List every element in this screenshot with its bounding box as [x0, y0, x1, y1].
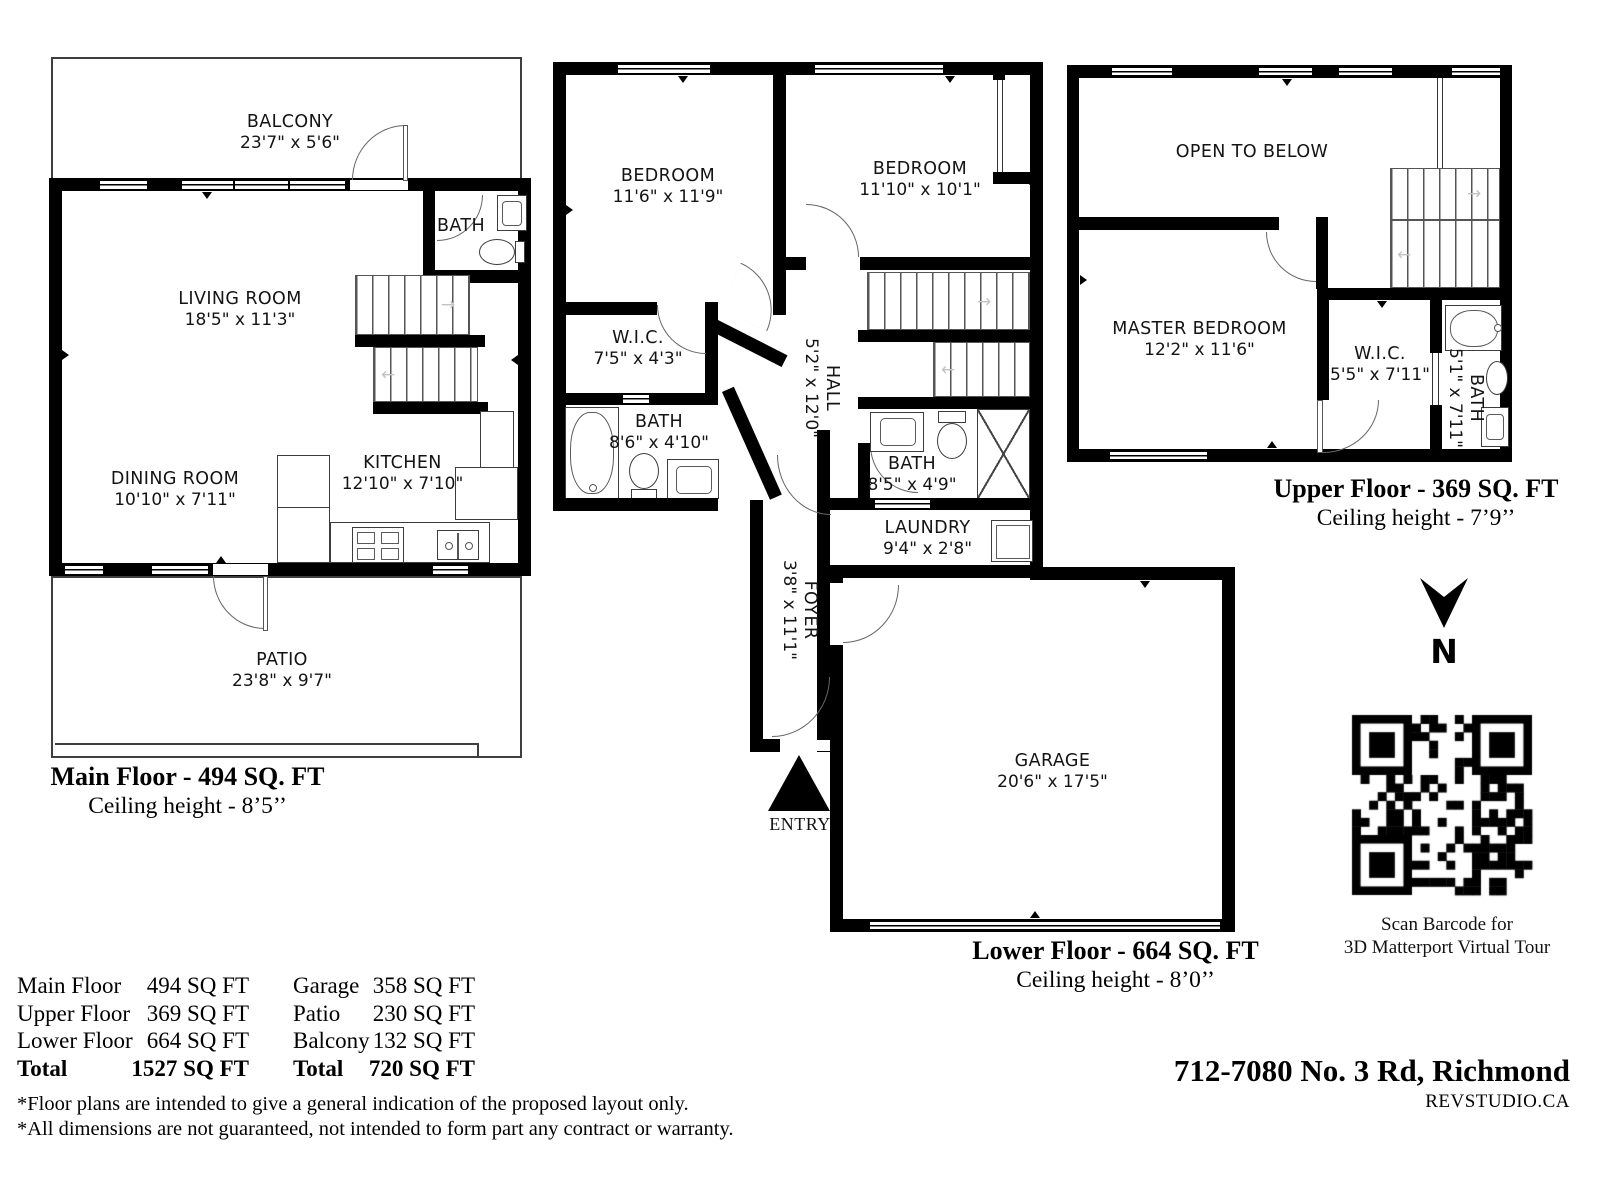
bathroom-sink: [497, 195, 527, 231]
wall: [49, 178, 62, 576]
room-label-kitchen: KITCHEN 12'10" x 7'10": [315, 452, 490, 496]
shower: [977, 409, 1030, 499]
address: 712-7080 No. 3 Rd, Richmond: [900, 1054, 1570, 1088]
window-mullion: [233, 179, 235, 191]
wall-tick: [678, 76, 688, 83]
door-opening: [350, 180, 408, 190]
stairs-arrow-icon: →: [441, 297, 455, 314]
patio-step-line: [477, 743, 479, 757]
caption-lower-floor: Lower Floor - 664 SQ. FT Ceiling height …: [958, 936, 1273, 995]
summary-row: Balcony132 SQ FT: [293, 1027, 475, 1055]
wall-tick: [1030, 911, 1040, 918]
room-label-laundry: LAUNDRY 9'4" x 2'8": [845, 517, 1010, 561]
room-label-master: MASTER BEDROOM 12'2" x 11'6": [1092, 318, 1307, 362]
floorplan-page: BATH → ←: [0, 0, 1600, 1200]
area-summary-right: Garage358 SQ FT Patio230 SQ FT Balcony13…: [293, 972, 475, 1082]
window: [100, 179, 147, 191]
room-label-wic: W.I.C. 5'5" x 7'11": [1325, 343, 1435, 387]
wall-tick: [1023, 175, 1030, 185]
wall: [1345, 288, 1512, 300]
disclaimer-line-1: *Floor plans are intended to give a gene…: [17, 1092, 777, 1117]
door-arc: [777, 455, 831, 515]
room-label-foyer: FOYER 3'8" x 11'1": [775, 550, 821, 670]
wall: [1079, 217, 1279, 230]
stairs-arrow-icon: ←: [941, 362, 955, 379]
window: [1110, 450, 1207, 461]
window: [815, 63, 943, 75]
brand: REVSTUDIO.CA: [900, 1088, 1570, 1116]
summary-row: Upper Floor369 SQ FT: [17, 1000, 249, 1028]
wall: [1500, 65, 1512, 462]
pocket-door: [623, 393, 649, 405]
garage-door: [870, 920, 1220, 931]
door-opening: [830, 583, 843, 645]
door-arc: [1323, 400, 1379, 453]
room-label-open-to-below: OPEN TO BELOW: [1142, 141, 1362, 163]
room-label-patio: PATIO 23'8" x 9'7": [192, 649, 372, 693]
room-label-bath2: BATH 8'5" x 4'9": [847, 453, 977, 497]
window: [152, 564, 208, 576]
window: [433, 564, 468, 576]
wall-tick: [62, 350, 69, 360]
bathroom-sink: [870, 412, 924, 452]
wall: [1222, 567, 1235, 932]
door-leaf: [403, 125, 408, 181]
door-arc: [1266, 232, 1316, 282]
summary-row: Patio230 SQ FT: [293, 1000, 475, 1028]
door-arc: [806, 204, 859, 257]
window: [1112, 66, 1172, 77]
door-arc: [843, 585, 899, 643]
wall: [830, 498, 1035, 510]
wall: [355, 335, 485, 347]
bathroom-sink: [667, 459, 719, 499]
room-label-hall: HALL 5'2" x 12'0": [797, 328, 843, 448]
wall: [750, 739, 780, 752]
wall-diagonal: [712, 320, 787, 367]
room-label-living: LIVING ROOM 18'5" x 11'3": [150, 288, 330, 332]
slide-door: [875, 498, 930, 510]
wall-tick: [511, 355, 518, 365]
entry-label: ENTRY: [760, 813, 840, 836]
window: [182, 179, 345, 191]
window: [1259, 66, 1312, 77]
summary-row: Garage358 SQ FT: [293, 972, 475, 1000]
caption-upper-floor: Upper Floor - 369 SQ. FT Ceiling height …: [1266, 474, 1566, 533]
wall: [773, 62, 786, 315]
wall: [373, 402, 488, 414]
entry-arrow-icon: [768, 755, 830, 811]
toilet: [1486, 361, 1508, 395]
wall-tick: [945, 76, 955, 83]
wall-tick: [1282, 79, 1292, 86]
wall: [993, 70, 1005, 80]
qr-code: [1347, 710, 1537, 900]
summary-row: Lower Floor664 SQ FT: [17, 1027, 249, 1055]
summary-row-total: Total1527 SQ FT: [17, 1055, 249, 1083]
summary-row-total: Total720 SQ FT: [293, 1055, 475, 1083]
wall-tick: [566, 205, 573, 215]
wall: [1030, 567, 1235, 580]
window: [1452, 66, 1500, 77]
wall-tick: [1267, 441, 1277, 448]
wall: [786, 257, 806, 270]
room-label-dining: DINING ROOM 10'10" x 7'11": [85, 468, 265, 512]
qr-caption: Scan Barcode for 3D Matterport Virtual T…: [1342, 914, 1552, 960]
north-arrow-icon: [1420, 578, 1468, 628]
wall: [1316, 217, 1328, 289]
room-label-bath1: BATH 8'6" x 4'10": [593, 411, 725, 455]
kitchen-sink: [437, 530, 479, 560]
toilet-tank: [515, 241, 525, 263]
stove: [352, 527, 404, 563]
disclaimer-line-2: *All dimensions are not guaranteed, not …: [17, 1117, 777, 1142]
stairs-arrow-icon: ←: [1397, 247, 1411, 264]
patio-step-line: [55, 743, 479, 745]
wall: [830, 565, 1035, 578]
window-mullion: [288, 179, 290, 191]
stairs-arrow-icon: ←: [381, 367, 395, 384]
wall: [553, 393, 623, 405]
room-label-bedroom1: BEDROOM 11'6" x 11'9": [573, 165, 763, 209]
room-label-bath: BATH: [425, 215, 497, 237]
window: [65, 564, 103, 576]
floor-plan-upper: → ← OPEN TO BELOW: [1067, 65, 1512, 465]
toilet-tank: [938, 411, 966, 423]
room-label-bedroom2: BEDROOM 11'10" x 10'1": [825, 158, 1015, 202]
wall: [1430, 405, 1442, 449]
north-label: N: [1418, 632, 1470, 671]
toilet: [629, 453, 659, 489]
wall: [750, 500, 763, 752]
room-label-garage: GARAGE 20'6" x 17'5": [960, 750, 1145, 794]
door-leaf: [1317, 400, 1323, 453]
caption-main-floor: Main Floor - 494 SQ. FT Ceiling height -…: [30, 762, 345, 821]
wall: [553, 302, 657, 315]
wall: [1067, 65, 1079, 462]
footer-address-block: 712-7080 No. 3 Rd, Richmond REVSTUDIO.CA: [900, 1054, 1570, 1116]
room-label-wic: W.I.C. 7'5" x 4'3": [563, 327, 713, 371]
floor-plan-main: BATH → ←: [45, 55, 537, 767]
area-summary-left: Main Floor494 SQ FT Upper Floor369 SQ FT…: [17, 972, 249, 1082]
summary-row: Main Floor494 SQ FT: [17, 972, 249, 1000]
stairs-arrow-icon: →: [977, 294, 991, 311]
stairs: [1390, 168, 1500, 220]
wall-diagonal: [722, 387, 782, 500]
wall-tick: [1140, 581, 1150, 588]
wall: [518, 178, 531, 576]
wall: [858, 330, 1030, 342]
window: [618, 63, 710, 75]
window: [1339, 66, 1392, 77]
wall-tick: [216, 556, 226, 563]
wall: [649, 393, 718, 405]
kitchen-counter: [277, 507, 330, 563]
toilet: [479, 239, 515, 265]
wall: [860, 257, 1030, 270]
room-label-balcony: BALCONY 23'7" x 5'6": [200, 111, 380, 155]
stairs: [867, 272, 1030, 330]
door-opening: [213, 564, 268, 575]
wall-tick: [1080, 275, 1087, 285]
wall-tick: [1377, 301, 1387, 308]
wall: [553, 498, 718, 511]
room-label-bath: BATH 5'1" x 7'11": [1447, 343, 1487, 453]
door-opening: [780, 740, 830, 751]
stairs-arrow-icon: →: [1467, 186, 1481, 203]
wall-tick: [202, 192, 212, 199]
wall: [858, 397, 1030, 409]
stair-railing: [1437, 78, 1443, 168]
door-leaf: [263, 576, 268, 631]
